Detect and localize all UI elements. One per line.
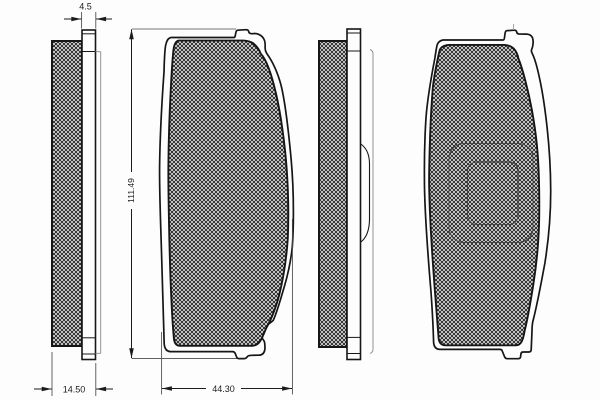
- svg-text:44.30: 44.30: [212, 384, 235, 394]
- svg-text:111.49: 111.49: [126, 178, 136, 203]
- svg-text:4.5: 4.5: [79, 2, 92, 12]
- svg-text:14.50: 14.50: [63, 385, 86, 395]
